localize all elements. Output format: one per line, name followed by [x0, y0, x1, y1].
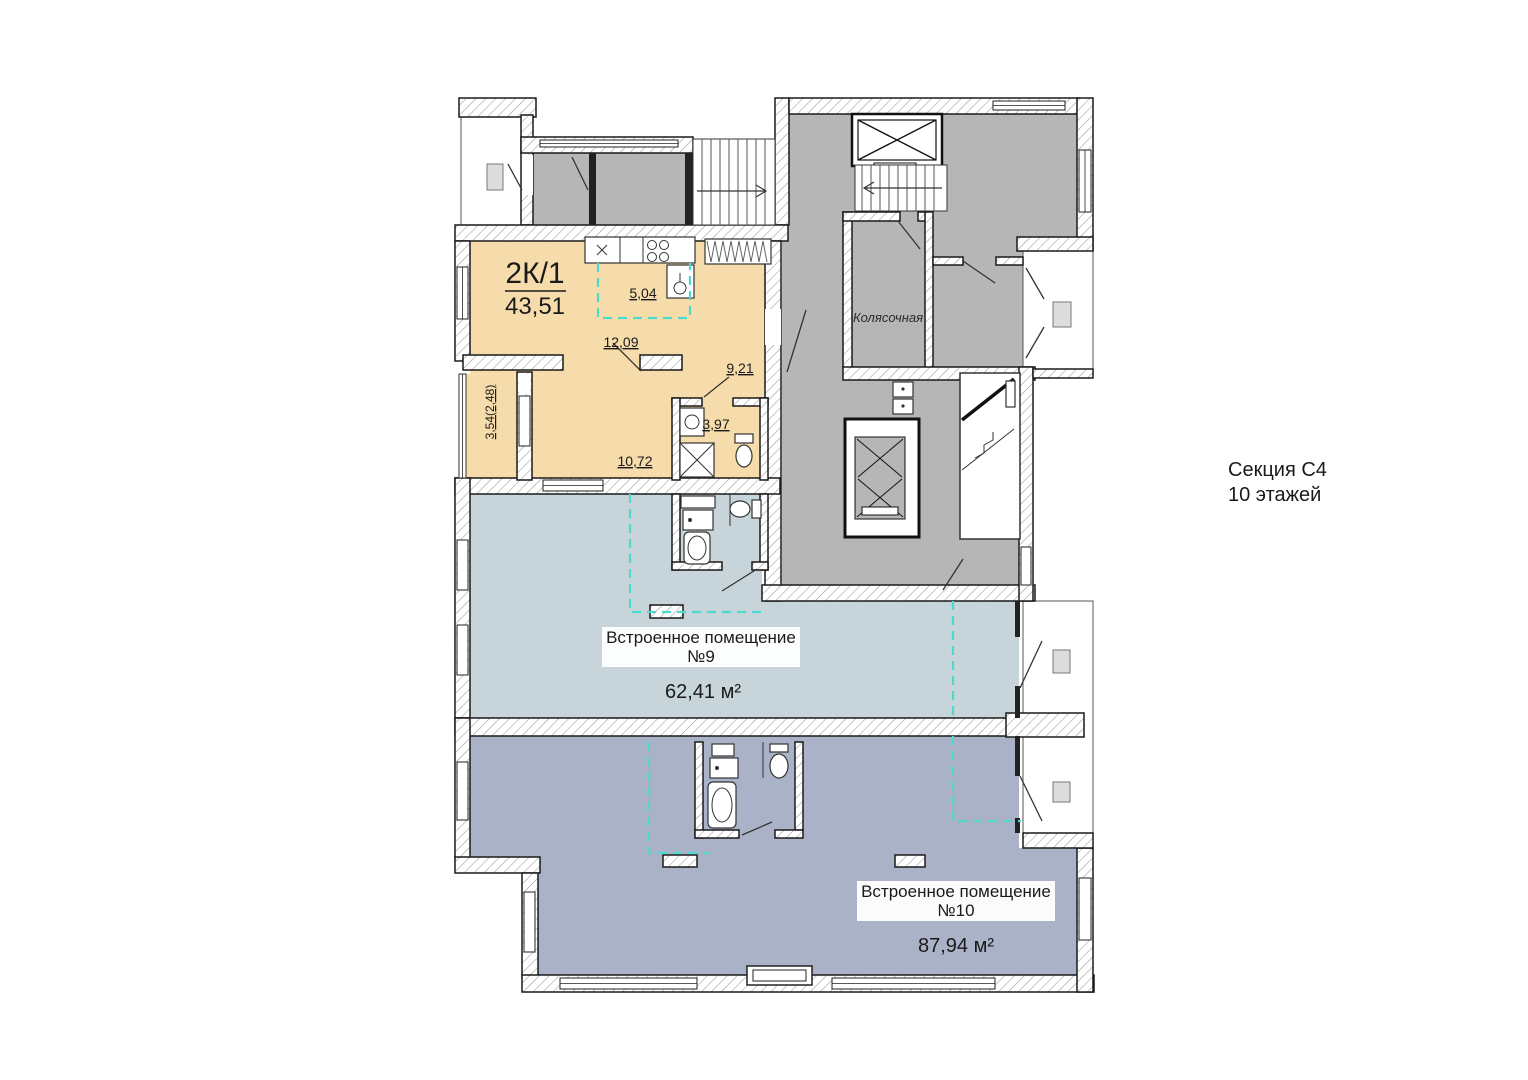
premises9-area: 62,41 м² — [665, 681, 741, 703]
elevator-1 — [852, 114, 942, 168]
wall-apartment-bottom — [455, 478, 780, 494]
door-gap-balcony — [519, 374, 530, 394]
wall-lobby-bottom — [1017, 237, 1093, 251]
premises9-title: Встроенное помещение — [606, 628, 796, 647]
premises10-area: 87,94 м² — [918, 935, 994, 957]
premises9-number: №9 — [687, 647, 715, 666]
basement-stair-niche — [1006, 381, 1015, 407]
wall-core-bottom — [762, 585, 1035, 601]
door-gap-apartment-entry — [765, 309, 781, 345]
wall-terrace2-bottom — [1023, 833, 1093, 848]
wall-p10bath-bottom-a — [695, 830, 739, 838]
wall-p9-terrace-a — [1015, 601, 1020, 637]
wall-p9-terrace-b — [1015, 686, 1020, 718]
sink — [683, 510, 713, 530]
wall-stairs-core — [775, 98, 789, 225]
stairs-1-body — [693, 139, 775, 225]
apartment-total-area-label: 43,51 — [505, 293, 565, 320]
window-premises10-left — [457, 762, 468, 820]
wall-vestibule-stairs — [685, 153, 693, 225]
wall-aptbath-right — [760, 398, 768, 480]
sink-drain-icon — [688, 518, 692, 522]
entry-step-inner — [753, 970, 806, 981]
wall-room2-top-b — [996, 257, 1023, 265]
door-gap-porch — [522, 155, 533, 195]
sink — [710, 758, 738, 778]
wall-stroller-left — [843, 212, 852, 368]
toilet-bowl — [730, 501, 750, 517]
stroller-room-label: Колясочная — [853, 310, 923, 325]
wall-stroller-top-a — [843, 212, 900, 221]
sink-drain-icon — [715, 766, 719, 770]
washer — [680, 408, 704, 436]
entrance-mat — [487, 164, 503, 190]
wall-p10bath-right — [795, 742, 803, 830]
floor-plan-drawing: 2К/1 43,51 5,04 12,09 9,21 3,97 10,72 3,… — [0, 0, 1528, 1080]
entrance-mat — [1053, 650, 1070, 673]
partition-stub-p10-b — [895, 855, 925, 867]
stairs-main — [693, 139, 775, 225]
window-premises9-a — [457, 540, 468, 590]
apartment-type-label: 2К/1 — [505, 257, 564, 290]
toilet-tank — [752, 500, 761, 518]
utility-dot — [901, 404, 904, 407]
wall-p9bath-left — [672, 494, 680, 570]
bedroom-area-label: 10,72 — [617, 453, 652, 469]
kitchen-area-label: 5,04 — [629, 285, 656, 301]
utility-dot — [901, 387, 904, 390]
section-floors-label: 10 этажей — [1228, 484, 1321, 506]
wall-terrace1-bottom — [1033, 369, 1093, 378]
balcony-area-label: 3,54(2,48) — [483, 385, 497, 440]
living-room-area-label: 12,09 — [603, 334, 638, 350]
elevator-2-door — [862, 507, 898, 515]
premises10-title: Встроенное помещение — [861, 882, 1051, 901]
window-core-right — [1021, 547, 1031, 585]
premises10-number: №10 — [937, 901, 974, 920]
wall-stroller-right — [925, 212, 933, 368]
toilet-tank — [735, 434, 753, 443]
window-balcony-door — [519, 396, 530, 446]
toilet-bowl — [770, 754, 788, 778]
cabinet — [712, 744, 734, 756]
wall-notch-horizontal — [455, 857, 540, 873]
wall-vestibule-partition — [589, 153, 596, 225]
toilet-bowl — [736, 445, 752, 467]
wall-p10-terrace-a — [1015, 736, 1020, 776]
wall-living-bedroom-a — [463, 355, 563, 370]
wall-p9bath-bottom-b — [752, 562, 768, 570]
partition-stub-p10-a — [663, 855, 697, 867]
window-notch — [524, 892, 535, 952]
bathroom-area-label: 3,97 — [702, 416, 729, 432]
wall-porch-top — [459, 98, 536, 117]
balcony-glazing — [459, 374, 466, 478]
basement-stair-room — [960, 373, 1020, 539]
wall-p10bath-bottom-b — [775, 830, 803, 838]
zone-vestibule — [532, 153, 685, 225]
floor-plan-page: 2К/1 43,51 5,04 12,09 9,21 3,97 10,72 3,… — [0, 0, 1528, 1080]
section-name-label: Секция С4 — [1228, 459, 1327, 481]
wall-p10bath-left — [695, 742, 703, 838]
stairs-secondary — [855, 165, 947, 211]
wall-room2-top-a — [933, 257, 963, 265]
entrance-mat — [1053, 302, 1071, 327]
toilet-tank — [770, 744, 788, 752]
window-premises9-b — [457, 625, 468, 675]
wall-left-mid — [455, 478, 470, 718]
entrance-mat — [1053, 782, 1070, 802]
window-right-low — [1079, 878, 1091, 940]
hall-area-label: 9,21 — [726, 360, 753, 376]
cabinet — [681, 496, 715, 508]
wall-living-bedroom-b — [640, 355, 682, 370]
wall-divider-9-10 — [455, 718, 1019, 736]
wall-aptbath-left — [672, 398, 680, 480]
